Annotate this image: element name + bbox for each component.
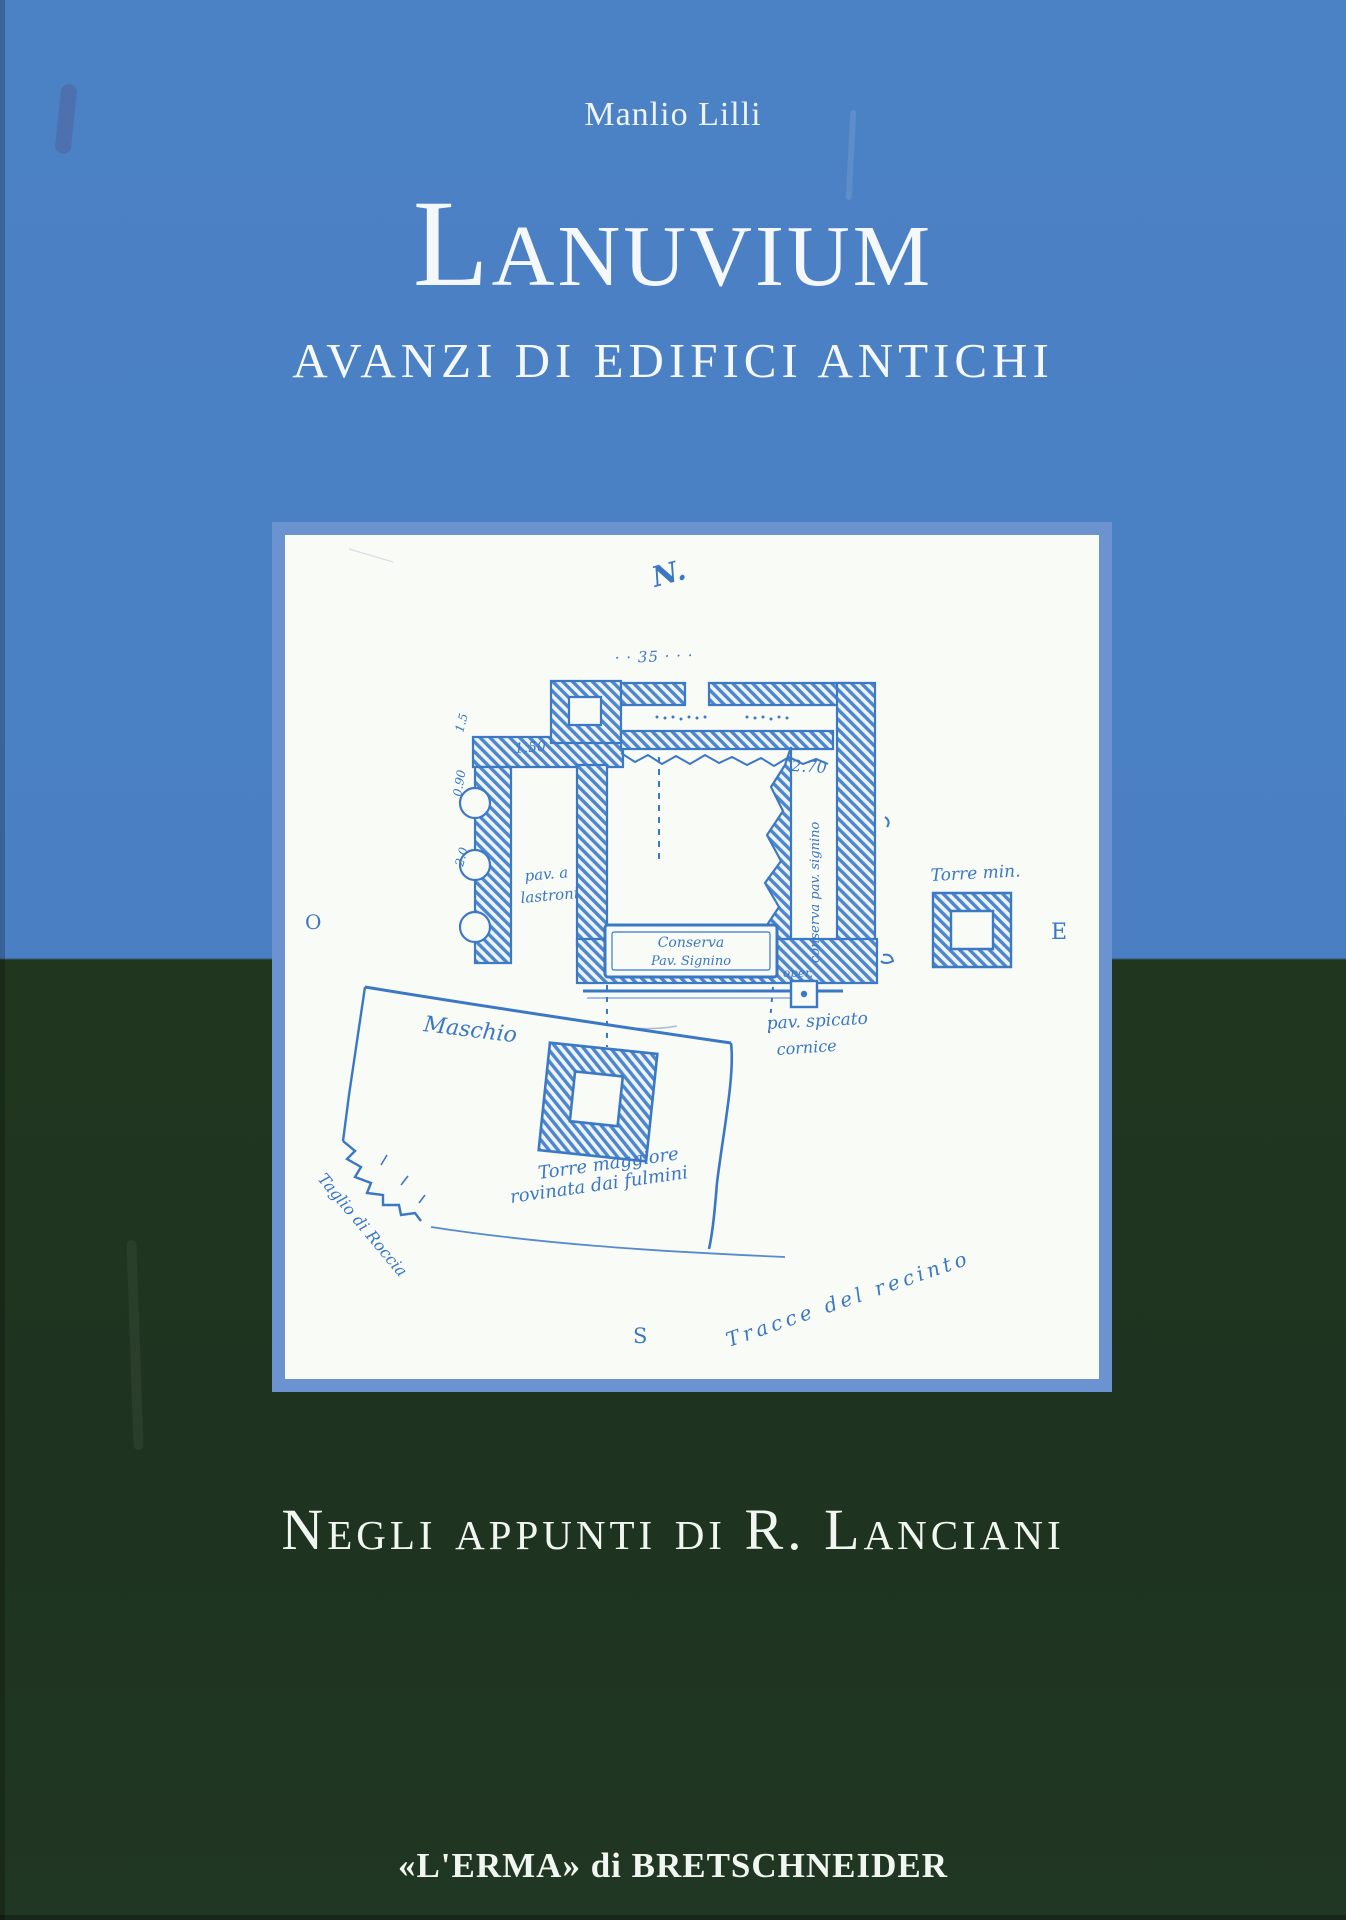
east-label: E: [1051, 920, 1067, 945]
opening-square: [791, 981, 817, 1007]
cornice-label: cornice: [776, 1036, 837, 1059]
measure-15: 1.5: [452, 712, 470, 734]
enclosure-left-edge: [343, 987, 365, 1141]
sketch-panel: Conserva Pav. Signino Torre min.: [272, 522, 1112, 1392]
pav-lastroni-line1: pav. a: [524, 863, 569, 885]
conserva-label-box: Conserva Pav. Signino: [605, 925, 777, 977]
book-title: Lanuvium: [0, 182, 1346, 306]
taglio-roccia-label: Taglio di Roccia: [314, 1169, 411, 1280]
enclosure-right-edge: [709, 1043, 732, 1249]
scan-edge: [0, 1915, 1346, 1920]
rock-tick-marks: [381, 1155, 425, 1203]
pavement-dots: [656, 716, 789, 721]
pav-spicato-label: pav. spicato: [766, 1009, 868, 1034]
west-label: O: [305, 910, 321, 934]
lower-enclosure: [343, 987, 785, 1257]
book-subtitle: AVANZI DI EDIFICI ANTICHI: [0, 332, 1346, 389]
scan-edge: [0, 0, 5, 1920]
enclosure-bottom-line: [431, 1227, 785, 1257]
torre-min-label: Torre min.: [930, 861, 1021, 886]
publisher-imprint: «L'ERMA» di BRETSCHNEIDER: [0, 1846, 1346, 1886]
enclosure-top-edge: [365, 987, 731, 1043]
pav-lastroni-line2: lastroni: [520, 884, 580, 907]
conserva-box-line2: Pav. Signino: [650, 954, 731, 969]
measure-270: 2.70: [790, 756, 828, 777]
paper-scratch: [349, 549, 393, 562]
book-cover: Manlio Lilli Lanuvium AVANZI DI EDIFICI …: [0, 0, 1346, 1920]
south-label: S: [633, 1324, 647, 1348]
measure-35: · · 35 · · ·: [615, 646, 694, 667]
conserva-box-line1: Conserva: [658, 935, 725, 951]
series-line: Negli appunti di R. Lanciani: [0, 1496, 1346, 1563]
lanciani-plan-sketch: Conserva Pav. Signino Torre min.: [285, 535, 1099, 1379]
ink-mark: [881, 955, 893, 963]
torre-minore: Torre min.: [930, 861, 1021, 967]
maschio-label: Maschio: [421, 1012, 518, 1048]
oper-label: oper.: [783, 966, 813, 980]
ink-mark: [885, 817, 889, 827]
author-name: Manlio Lilli: [0, 96, 1346, 134]
scan-artifact: [126, 1240, 143, 1450]
tracce-recinto-label: Tracce del recinto: [723, 1245, 974, 1351]
torre-maggiore: [539, 1043, 658, 1162]
north-label: N.: [647, 553, 689, 594]
conserva-vertical-label: conserva pav. signino: [808, 822, 823, 963]
measure-150: 1.50: [514, 739, 546, 757]
